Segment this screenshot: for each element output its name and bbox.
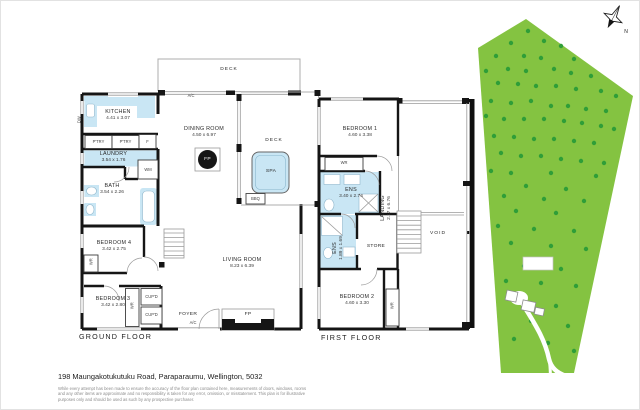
tree-dot xyxy=(572,139,576,143)
spa-label: SPA xyxy=(257,169,285,175)
tree-dot xyxy=(572,349,576,353)
tree-dot xyxy=(504,279,508,283)
bedroom1-label: BEDROOM 1 4.60 x 3.38 xyxy=(331,126,389,139)
tree-dot xyxy=(599,89,603,93)
tree-dot xyxy=(592,141,596,145)
laundry-label: LAUNDRY 3.54 x 1.76 xyxy=(86,151,141,164)
tree-dot xyxy=(554,84,558,88)
landing-label: LANDING 2.17 x 6.76 xyxy=(380,180,394,236)
cupboard-label-2: CUP'D xyxy=(141,312,162,317)
tree-dot xyxy=(524,69,528,73)
kitchen-label: KITCHEN 4.41 x 3.07 xyxy=(89,109,147,122)
tree-dot xyxy=(492,134,496,138)
tree-dot xyxy=(532,227,536,231)
tree-dot xyxy=(564,187,568,191)
bedroom1-wardrobe-label: WR xyxy=(325,160,363,165)
tree-dot xyxy=(602,161,606,165)
bath-label: BATH 3.54 x 2.26 xyxy=(89,183,135,196)
tree-dot xyxy=(489,99,493,103)
dining-room-label: DINING ROOM 4.50 x 6.97 xyxy=(175,126,233,139)
tree-dot xyxy=(542,39,546,43)
tree-dot xyxy=(539,154,543,158)
north-label: N xyxy=(621,29,631,36)
tree-dot xyxy=(604,109,608,113)
tree-dot xyxy=(514,209,518,213)
tree-dot xyxy=(534,84,538,88)
site-plan xyxy=(466,19,633,386)
tree-dot xyxy=(532,137,536,141)
tree-dot xyxy=(524,184,528,188)
site-boundary xyxy=(478,19,633,373)
tree-dot xyxy=(484,69,488,73)
tree-dot xyxy=(584,107,588,111)
tree-dot xyxy=(572,229,576,233)
deck-right-label: DECK xyxy=(259,138,289,144)
tree-dot xyxy=(559,44,563,48)
floor-plan-drawing xyxy=(1,1,640,410)
site-label-box xyxy=(523,257,553,270)
tree-dot xyxy=(502,117,506,121)
tree-dot xyxy=(529,99,533,103)
tree-dot xyxy=(572,57,576,61)
tree-dot xyxy=(582,199,586,203)
bedroom2-wardrobe-label: WR xyxy=(389,298,394,314)
tree-dot xyxy=(549,244,553,248)
tree-dot xyxy=(484,114,488,118)
disclaimer-text: While every attempt has been made to ens… xyxy=(58,386,310,402)
tree-dot xyxy=(614,94,618,98)
tree-dot xyxy=(549,171,553,175)
ensuite2-label: ENS 1.89 x 1.69 xyxy=(332,224,346,272)
bedroom2-label: BEDROOM 2 4.60 x 3.30 xyxy=(328,294,386,307)
tree-dot xyxy=(499,151,503,155)
pantry-label-2: P'TRY xyxy=(112,139,139,144)
living-fireplace-label: FP xyxy=(240,312,256,318)
washing-machine-label: WM xyxy=(138,167,158,172)
tree-dot xyxy=(522,117,526,121)
tree-dot xyxy=(554,211,558,215)
tree-dot xyxy=(569,71,573,75)
tree-dot xyxy=(559,267,563,271)
void-label: VOID xyxy=(425,231,451,237)
bedroom3-wardrobe-label: WR xyxy=(129,298,134,314)
tree-dot xyxy=(594,174,598,178)
tree-dot xyxy=(509,241,513,245)
tree-dot xyxy=(566,324,570,328)
dishwasher-label: DW xyxy=(76,112,81,128)
tree-dot xyxy=(584,247,588,251)
deck-top-outline xyxy=(158,59,300,91)
scale-bar xyxy=(466,99,475,328)
floor-plan-page: DECK A/C KITCHEN 4.41 x 3.07 DW P'TRY P'… xyxy=(0,0,640,410)
property-address: 198 Maungakotukutuku Road, Paraparaumu, … xyxy=(58,372,262,382)
tree-dot xyxy=(574,87,578,91)
tree-dot xyxy=(542,197,546,201)
ensuite1-label: ENS 3.40 x 2.74 xyxy=(326,187,376,200)
first-floor-stairs xyxy=(397,156,464,253)
store-label: STORE xyxy=(359,244,393,250)
tree-dot xyxy=(542,117,546,121)
tree-dot xyxy=(496,224,500,228)
tree-dot xyxy=(506,67,510,71)
fridge-label: F xyxy=(139,139,156,144)
ac-unit-label: A/C xyxy=(181,93,201,98)
tree-dot xyxy=(489,169,493,173)
tree-dot xyxy=(552,137,556,141)
pantry-label-1: P'TRY xyxy=(85,139,112,144)
dining-fireplace-label: FP xyxy=(200,157,215,163)
driveway-branch xyxy=(549,359,551,386)
living-room-label: LIVING ROOM 8.23 x 6.39 xyxy=(213,257,271,270)
tree-dot xyxy=(509,41,513,45)
first-floor-title: FIRST FLOOR xyxy=(321,333,382,342)
tree-dot xyxy=(589,74,593,78)
tree-dot xyxy=(559,157,563,161)
tree-dot xyxy=(512,337,516,341)
ground-floor-stairs xyxy=(159,229,184,268)
deck-top-label: DECK xyxy=(194,67,264,73)
ground-floor-title: GROUND FLOOR xyxy=(79,332,152,341)
bbq-label: BBQ xyxy=(246,196,265,201)
tree-dot xyxy=(574,284,578,288)
tree-dot xyxy=(579,159,583,163)
foyer-label: FOYER xyxy=(172,312,204,318)
bedroom4-wardrobe-label: WR xyxy=(88,254,93,270)
cupboard-label-1: CUP'D xyxy=(141,294,162,299)
tree-dot xyxy=(562,119,566,123)
tree-dot xyxy=(549,104,553,108)
bedroom4-label: BEDROOM 4 3.42 x 2.75 xyxy=(86,240,142,253)
tree-dot xyxy=(566,104,570,108)
tree-dot xyxy=(539,56,543,60)
tree-dot xyxy=(539,281,543,285)
tree-dot xyxy=(516,82,520,86)
tree-dot xyxy=(599,124,603,128)
tree-dot xyxy=(509,101,513,105)
tree-dot xyxy=(512,135,516,139)
tree-dot xyxy=(496,81,500,85)
tree-dot xyxy=(554,304,558,308)
tree-dot xyxy=(502,194,506,198)
tree-dot xyxy=(519,154,523,158)
tree-dot xyxy=(526,29,530,33)
tree-dot xyxy=(552,67,556,71)
ac-entry-label: A/C xyxy=(184,320,202,325)
tree-dot xyxy=(509,171,513,175)
tree-dot xyxy=(522,54,526,58)
tree-dot xyxy=(494,54,498,58)
deck-right xyxy=(241,90,321,207)
tree-dot xyxy=(580,121,584,125)
north-compass-icon xyxy=(599,1,628,32)
tree-dot xyxy=(612,127,616,131)
